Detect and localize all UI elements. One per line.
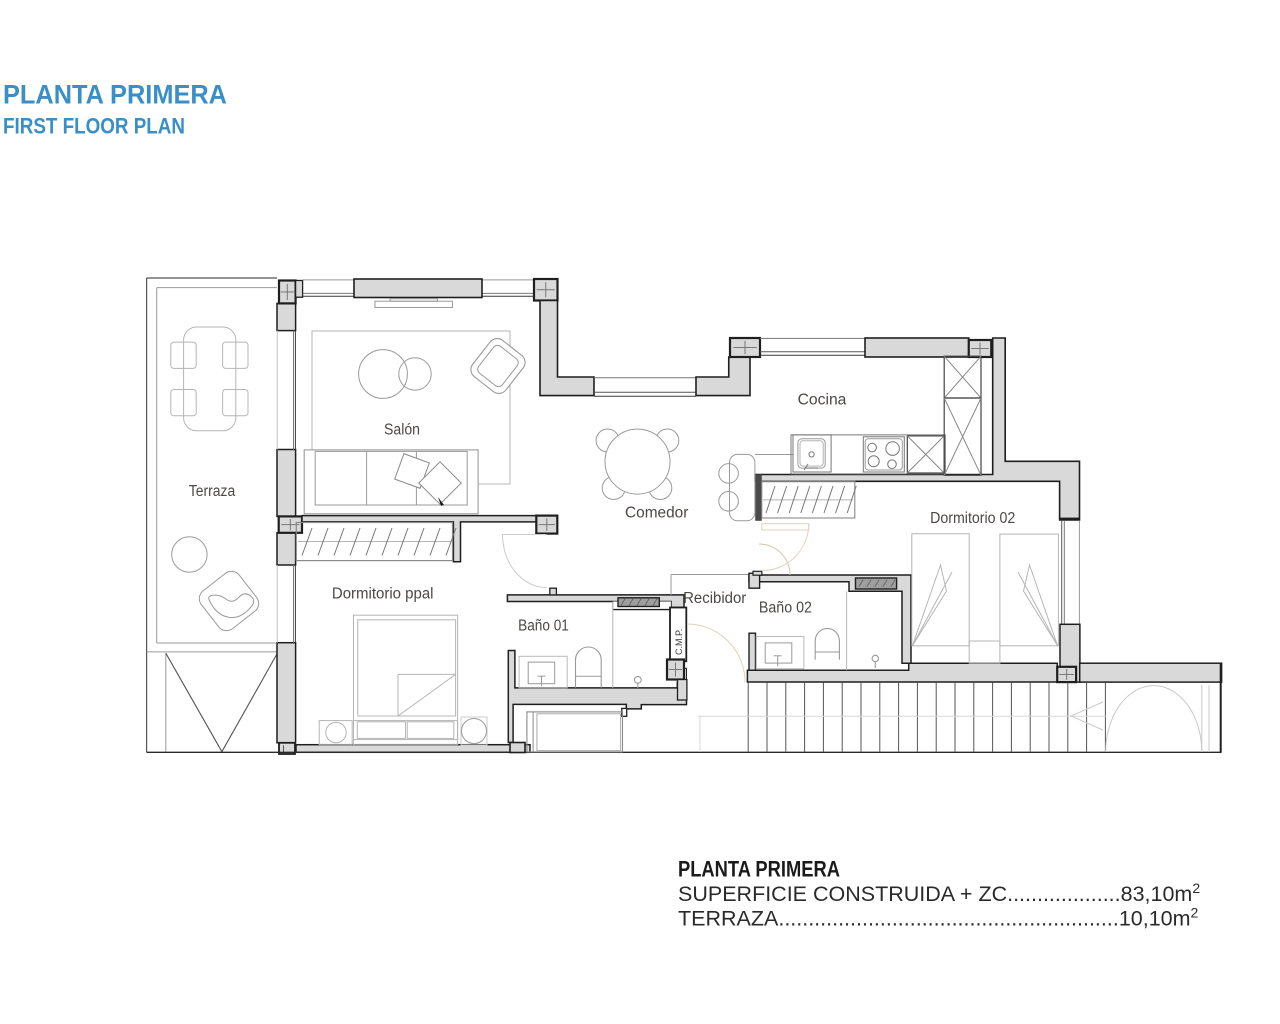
svg-text:Cocina: Cocina — [798, 392, 847, 409]
svg-text:Baño 02: Baño 02 — [759, 600, 812, 617]
svg-text:Comedor: Comedor — [625, 505, 688, 522]
svg-text:Dormitorio 02: Dormitorio 02 — [930, 510, 1015, 527]
svg-text:Terraza: Terraza — [189, 483, 236, 500]
svg-text:Salón: Salón — [384, 422, 420, 439]
svg-text:Dormitorio ppal: Dormitorio ppal — [332, 586, 434, 603]
svg-text:FIRST FLOOR PLAN: FIRST FLOOR PLAN — [3, 114, 185, 139]
svg-text:C.M.P.: C.M.P. — [674, 629, 684, 655]
svg-text:TERRAZA.......................: TERRAZA.................................… — [678, 905, 1199, 931]
svg-text:SUPERFICIE CONSTRUIDA + ZC....: SUPERFICIE CONSTRUIDA + ZC..............… — [678, 880, 1200, 906]
svg-text:Baño 01: Baño 01 — [518, 618, 569, 635]
svg-text:PLANTA PRIMERA: PLANTA PRIMERA — [3, 80, 227, 110]
svg-text:Recibidor: Recibidor — [683, 590, 746, 607]
svg-text:PLANTA PRIMERA: PLANTA PRIMERA — [678, 857, 840, 882]
